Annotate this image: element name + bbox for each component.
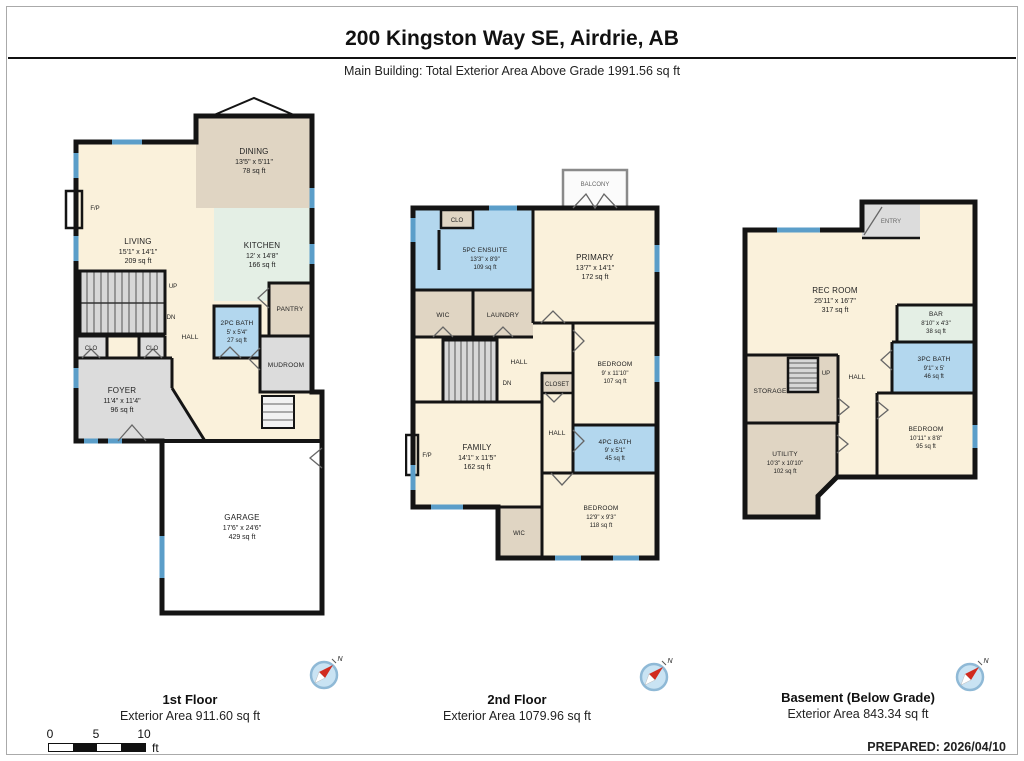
- bath3pc-label: 3PC BATH: [918, 356, 951, 363]
- floor3-title: Basement (Below Grade): [728, 690, 988, 705]
- ensuite-area: 109 sq ft: [473, 265, 496, 271]
- scale-tick-0: 0: [47, 727, 54, 741]
- kitchen-dims: 12' x 14'8": [246, 253, 279, 260]
- clo-left-label: CLO: [85, 346, 98, 352]
- scale-tick-5: 5: [93, 727, 100, 741]
- scale-unit: ft: [152, 741, 159, 755]
- fireplace-label: F/P: [422, 453, 431, 459]
- footer-1st-floor: 1st Floor Exterior Area 911.60 sq ft: [60, 692, 320, 723]
- hall-mid-label: HALL: [548, 430, 565, 437]
- hall-label: HALL: [848, 374, 865, 381]
- kitchen-label: KITCHEN: [244, 241, 281, 250]
- utility-area: 102 sq ft: [773, 469, 796, 475]
- bedroom-bsmt-dims: 10'11" x 8'8": [910, 436, 942, 442]
- utility-dims: 10'3" x 10'10": [767, 461, 803, 467]
- dining-dims: 13'5" x 5'11": [235, 159, 273, 166]
- stairs-dn-label: DN: [167, 315, 176, 321]
- bedroom1-dims: 9' x 11'10": [602, 371, 629, 377]
- closet-label: CLOSET: [545, 382, 569, 388]
- hall-top-label: HALL: [510, 359, 527, 366]
- compass-n-label: N: [667, 658, 673, 665]
- plan-2nd-floor: BALCONY CLO 5PC ENSUITE 13'3" x 8'9" 109…: [405, 160, 675, 570]
- primary-area: 172 sq ft: [582, 274, 609, 281]
- bedroom-bsmt-area: 95 sq ft: [916, 444, 936, 450]
- garage-dims: 17'6" x 24'6": [223, 525, 262, 532]
- bar-label: BAR: [929, 311, 943, 318]
- foyer-label: FOYER: [108, 386, 137, 395]
- stairs-up-label: UP: [822, 371, 830, 377]
- bath3pc-area: 46 sq ft: [924, 374, 944, 380]
- foyer-dims: 11'4" x 11'4": [103, 398, 141, 405]
- bath2pc-dims: 5' x 5'4": [227, 330, 248, 336]
- dining-area: 78 sq ft: [243, 168, 266, 175]
- fireplace-label: F/P: [90, 206, 99, 212]
- bar-dims: 8'10" x 4'3": [921, 321, 951, 327]
- ensuite-dims: 13'3" x 8'9": [470, 257, 500, 263]
- bath2pc-area: 27 sq ft: [227, 338, 247, 344]
- floor2-title: 2nd Floor: [387, 692, 647, 707]
- bedroom1-area: 107 sq ft: [603, 379, 626, 385]
- recroom-dims: 25'11" x 16'7": [814, 298, 856, 305]
- recroom-label: REC ROOM: [812, 286, 858, 295]
- page-subtitle: Main Building: Total Exterior Area Above…: [0, 64, 1024, 78]
- stairs-2nd: [443, 340, 497, 402]
- compass-n-label: N: [337, 656, 343, 663]
- foyer-area: 96 sq ft: [111, 407, 134, 414]
- balcony-label: BALCONY: [581, 182, 610, 188]
- compass-icon-2nd: N: [634, 654, 676, 696]
- bedroom1-label: BEDROOM: [598, 361, 633, 368]
- storage-label: STORAGE: [753, 388, 787, 395]
- scale-tick-10: 10: [137, 727, 150, 741]
- bath3pc-dims: 9'1" x 5': [924, 366, 945, 372]
- family-dims: 14'1" x 11'5": [458, 455, 496, 462]
- dining-label: DINING: [239, 147, 268, 156]
- living-label: LIVING: [124, 237, 151, 246]
- floor2-area: Exterior Area 1079.96 sq ft: [387, 709, 647, 723]
- bath2pc-label: 2PC BATH: [221, 320, 254, 327]
- mudroom-label: MUDROOM: [268, 362, 304, 369]
- family-label: FAMILY: [462, 443, 492, 452]
- stairs-dn-label: DN: [503, 381, 512, 387]
- bath4pc-dims: 9' x 5'1": [605, 448, 626, 454]
- floor1-area: Exterior Area 911.60 sq ft: [60, 709, 320, 723]
- bar-area: 38 sq ft: [926, 329, 946, 335]
- page-title: 200 Kingston Way SE, Airdrie, AB: [0, 27, 1024, 51]
- laundry-label: LAUNDRY: [487, 312, 520, 319]
- floor-plan-sheet: 200 Kingston Way SE, Airdrie, AB Main Bu…: [0, 0, 1024, 761]
- stairs-up-label: UP: [169, 284, 177, 290]
- bedroom-bsmt-label: BEDROOM: [909, 426, 944, 433]
- scale-bar: 0 5 10 ft: [46, 727, 186, 757]
- floor1-title: 1st Floor: [60, 692, 320, 707]
- hall-label: HALL: [181, 334, 198, 341]
- wic-bottom-label: WIC: [513, 531, 525, 537]
- entry-label: ENTRY: [881, 219, 901, 225]
- scale-bar-segments: [48, 743, 146, 752]
- living-area: 209 sq ft: [125, 258, 152, 265]
- wic-top-label: WIC: [436, 312, 449, 319]
- living-dims: 15'1" x 14'1": [119, 249, 158, 256]
- footer-2nd-floor: 2nd Floor Exterior Area 1079.96 sq ft: [387, 692, 647, 723]
- garage-area: 429 sq ft: [229, 534, 256, 541]
- recroom-area: 317 sq ft: [822, 307, 849, 314]
- clo-right-label: CLO: [146, 346, 159, 352]
- compass-icon-1st: N: [304, 652, 346, 694]
- plan-1st-floor: DINING 13'5" x 5'11" 78 sq ft LIVING 15'…: [62, 96, 342, 636]
- clo-label: CLO: [451, 218, 464, 224]
- balcony: [563, 170, 627, 208]
- bath4pc-label: 4PC BATH: [599, 439, 632, 446]
- bedroom2-area: 118 sq ft: [590, 523, 613, 529]
- bedroom2-dims: 12'9" x 9'3": [586, 515, 616, 521]
- prepared-date: PREPARED: 2026/04/10: [867, 740, 1006, 754]
- ensuite-label: 5PC ENSUITE: [463, 247, 508, 254]
- family-area: 162 sq ft: [464, 464, 491, 471]
- garage-label: GARAGE: [224, 513, 259, 522]
- bedroom2-label: BEDROOM: [584, 505, 619, 512]
- primary-dims: 13'7" x 14'1": [576, 265, 615, 272]
- dining-bay-window: [214, 98, 294, 115]
- pantry-label: PANTRY: [277, 306, 304, 313]
- plan-basement: ENTRY REC ROOM 25'11" x 16'7" 317 sq ft …: [740, 195, 985, 525]
- footer-basement: Basement (Below Grade) Exterior Area 843…: [728, 690, 988, 721]
- utility-label: UTILITY: [772, 451, 798, 458]
- bath4pc-area: 45 sq ft: [605, 456, 625, 462]
- header-divider: [8, 57, 1016, 59]
- floor3-area: Exterior Area 843.34 sq ft: [728, 707, 988, 721]
- compass-n-label: N: [983, 658, 989, 665]
- primary-label: PRIMARY: [576, 253, 614, 262]
- kitchen-area: 166 sq ft: [249, 262, 276, 269]
